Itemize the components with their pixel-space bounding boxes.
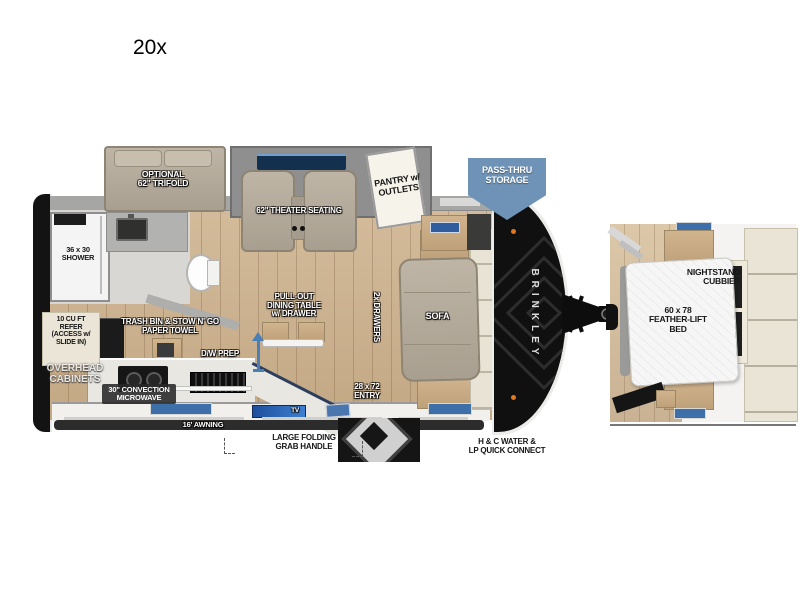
shower-label: 36 x 30 SHOWER (46, 246, 110, 263)
inset-underline (610, 424, 796, 426)
overhead-line1: OVERHEAD (25, 364, 125, 375)
awning-label: 16' AWNING (148, 421, 258, 429)
dining-line3: w/ DRAWER (262, 310, 326, 319)
refer-label-box: 10 CU FT REFER (ACCESS w/ SLIDE IN) (42, 312, 100, 366)
bed-line3: BED (636, 325, 720, 334)
front-closet (421, 215, 469, 251)
drawers-label: 2x DRAWERS (364, 292, 380, 370)
cupholder-left-icon (292, 226, 297, 231)
toilet-tank (207, 260, 220, 286)
trifold-back-cushion-left (114, 150, 162, 167)
theater-label-text: 62" THEATER SEATING (256, 206, 342, 215)
nightstand-line2: CUBBIES (652, 277, 740, 286)
drawers-label-text: 2x DRAWERS (372, 292, 381, 342)
pass-thru-line2: STORAGE (468, 176, 546, 186)
dw-prep-label: D/W PREP (192, 350, 248, 359)
dining-label: PULL-OUT DINING TABLE w/ DRAWER (262, 293, 326, 319)
tv-label: TV (291, 407, 299, 414)
refer-line3: (ACCESS w/ (43, 331, 99, 339)
trash-label: TRASH BIN & STOW N' GO PAPER TOWEL (110, 318, 230, 335)
window-kitchen (150, 403, 212, 415)
bed-label: 60 x 78 FEATHER-LIFT BED (636, 306, 720, 334)
towel-rail (172, 386, 252, 391)
awning-label-text: 16' AWNING (183, 420, 224, 429)
shower-fixture (54, 214, 86, 225)
refer-line1: 10 CU FT (43, 316, 99, 324)
water-connect-line2: LP QUICK CONNECT (452, 447, 562, 456)
entry-mat (326, 403, 351, 418)
trash-bin (157, 343, 174, 357)
marker-light-bottom-icon (511, 395, 516, 400)
sofa-label-text: SOFA (426, 311, 450, 321)
pullout-arrow-base (253, 369, 264, 372)
brand-label-text: BRINKLEY (529, 268, 540, 359)
trifold-label-line2: 62" TRIFOLD (113, 179, 213, 188)
refer-line2: REFER (43, 324, 99, 332)
slide-window (257, 154, 346, 170)
brand-label: BRINKLEY (524, 234, 540, 394)
pullout-arrow-head-icon (252, 332, 264, 341)
water-connect-label: H & C WATER & LP QUICK CONNECT (452, 438, 562, 456)
shower-label-line2: SHOWER (46, 254, 110, 262)
front-closet-window (430, 222, 460, 233)
bath-faucet-icon (128, 214, 134, 218)
grab-handle-pointer-left (224, 438, 235, 454)
trash-label-line2: PAPER TOWEL (110, 327, 230, 336)
entry-line2: ENTRY (342, 392, 392, 401)
entry-label: 28 x 72 ENTRY (342, 383, 392, 400)
floorplan-canvas: 20x 36 x 30 SHOWER SOFA 2x DRAWE (0, 0, 800, 600)
cupholder-right-icon (300, 226, 305, 231)
microwave-label: 30" CONVECTION MICROWAVE (102, 384, 176, 404)
bedroom-cabinets (744, 228, 798, 422)
grab-handle-line2: GRAB HANDLE (252, 443, 356, 452)
microwave-line2: MICROWAVE (102, 394, 176, 402)
trifold-label: OPTIONAL 62" TRIFOLD (113, 170, 213, 188)
front-wardrobe (467, 214, 491, 250)
sofa-label: SOFA (400, 312, 475, 322)
bath-sink (116, 218, 148, 241)
sofa-seam-bottom (404, 344, 471, 345)
theater-console (291, 196, 305, 240)
dw-prep-text: D/W PREP (201, 349, 239, 358)
nightstand-cubbies-label: NIGHTSTAND CUBBIES (652, 268, 740, 287)
dining-table (262, 339, 324, 347)
pullout-arrow-shaft (257, 340, 260, 370)
theater-label: 62" THEATER SEATING (251, 207, 347, 216)
grab-handle-label: LARGE FOLDING GRAB HANDLE (252, 434, 356, 452)
inset-hitch-post (606, 304, 618, 330)
top-wall-window-front (440, 198, 480, 206)
marker-light-top-icon (511, 229, 516, 234)
page-title: 20x (133, 36, 167, 60)
overhead-cabinets-label: OVERHEAD CABINETS (25, 364, 125, 385)
nightstand-window-bottom (674, 408, 706, 419)
refer-line4: SLIDE IN) (43, 339, 99, 347)
window-front (428, 403, 472, 415)
sofa-seam-top (404, 292, 471, 293)
trifold-back-cushion-right (164, 150, 212, 167)
inset-wood-block (656, 390, 676, 408)
